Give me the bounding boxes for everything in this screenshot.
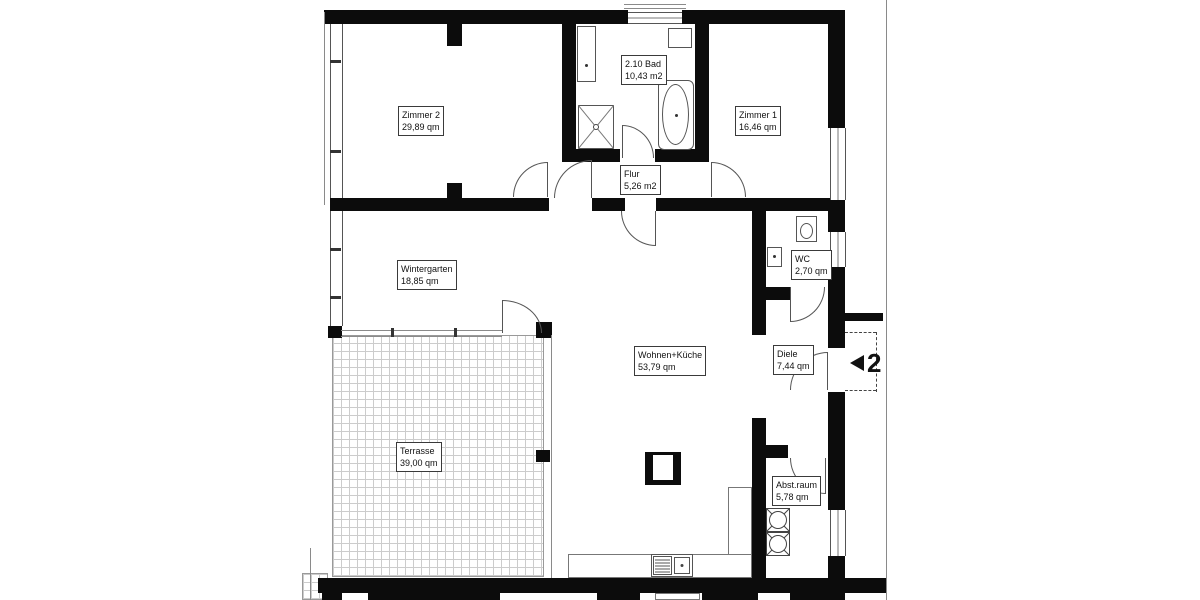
pillar [328,326,342,338]
wall-south-zimmer2 [330,198,549,211]
vanity-drain [585,64,588,67]
wc-sink-drain [773,255,776,258]
unit-number: 2 [867,350,881,376]
window-band-zimmer2 [330,24,343,198]
room-name: Diele [777,348,810,360]
floor-plan: Zimmer 2 29,89 qm 2.10 Bad 10,43 m2 Zimm… [0,0,1200,600]
entrance-dashed-line [845,390,876,391]
terrace-edge-line [551,335,552,578]
room-label-wintergarten: Wintergarten 18,85 qm [397,260,457,290]
door-arc-wintergarten [554,160,592,198]
room-label-flur: Flur 5,26 m2 [620,165,661,195]
wall-bad-flur [655,149,709,162]
door-arc-zimmer1 [711,162,746,197]
room-label-zimmer2: Zimmer 2 29,89 qm [398,106,444,136]
window-zimmer1 [830,128,846,200]
wall-stub [447,183,462,198]
facade-line [324,12,325,205]
wall-bad-zimmer1 [695,24,709,162]
wall-stub [322,593,342,600]
room-name: Wintergarten [401,263,453,275]
room-label-diele: Diele 7,44 qm [773,345,814,375]
kitchen-counter-side [728,487,752,555]
room-area: 5,78 qm [776,491,817,503]
window-wc [830,232,846,267]
wall [828,392,845,510]
wall [682,10,845,24]
room-area: 29,89 qm [402,121,440,133]
bathroom-vanity [577,26,596,82]
entrance-dashed-line [845,332,876,333]
mullion-tick [330,296,341,299]
wall-south-flur [592,198,625,211]
wall [828,10,845,128]
wall-stub [368,593,500,600]
wall-wc-diele [752,287,790,300]
room-label-wc: WC 2,70 qm [791,250,832,280]
door-arc-zimmer2 [513,162,548,197]
sill-line [624,8,686,9]
room-area: 2,70 qm [795,265,828,277]
door-arc-wohnen [621,211,656,246]
glass-wall-line [341,330,502,331]
building-outline [886,0,887,600]
room-label-abstellraum: Abst.raum 5,78 qm [772,476,821,506]
room-name: Terrasse [400,445,438,457]
room-label-wohnen-kueche: Wohnen+Küche 53,79 qm [634,346,706,376]
room-name: Flur [624,168,657,180]
unit-arrow-icon [850,355,864,371]
shower-icon [578,105,614,149]
room-name: Zimmer 2 [402,109,440,121]
wall-wohnen-wc [752,211,766,335]
door-arc-terrace [502,300,542,333]
room-area: 53,79 qm [638,361,702,373]
door-arc-bad [622,125,654,158]
room-area: 5,26 m2 [624,180,657,192]
room-area: 10,43 m2 [625,70,663,82]
room-area: 18,85 qm [401,275,453,287]
room-name: Zimmer 1 [739,109,777,121]
window-bad [628,12,682,24]
wall-stub [597,593,640,600]
room-label-terrasse: Terrasse 39,00 qm [396,442,442,472]
bathroom-cabinet [668,28,692,48]
window-band-wintergarten [330,211,343,326]
toilet-bowl [800,223,813,239]
kitchen-sink-icon [651,554,693,577]
room-name: Abst.raum [776,479,817,491]
chimney-flue [653,455,673,480]
wall-zimmer2-bad [562,24,576,152]
wall-stub [845,313,883,321]
bathtub-drain [675,114,678,117]
glass-wall-line [341,336,502,337]
window-lower-floor [655,593,700,600]
room-label-bad: 2.10 Bad 10,43 m2 [621,55,667,85]
room-area: 16,46 qm [739,121,777,133]
room-area: 39,00 qm [400,457,438,469]
neighbour-edge-line [310,548,311,600]
mullion-tick [330,248,341,251]
mullion-tick [330,60,341,63]
wall-diele-abstellraum [752,445,788,458]
unit-marker: 2 [850,350,881,376]
room-name: 2.10 Bad [625,58,663,70]
window-abstellraum [830,510,846,556]
room-area: 7,44 qm [777,360,810,372]
wall-stub [447,24,462,46]
mullion-tick [330,150,341,153]
room-name: WC [795,253,828,265]
pillar [536,450,550,462]
sill-line [624,4,686,5]
door-arc-wc [790,287,825,322]
mullion-tick [391,328,394,337]
room-name: Wohnen+Küche [638,349,702,361]
room-label-zimmer1: Zimmer 1 16,46 qm [735,106,781,136]
wall [324,10,628,24]
washer-dryer-icon [766,508,790,556]
wall-stub [702,593,758,600]
wall-bottom [318,578,886,593]
wall-south-zimmer1 [656,198,845,211]
wall-stub [790,593,845,600]
mullion-tick [454,328,457,337]
